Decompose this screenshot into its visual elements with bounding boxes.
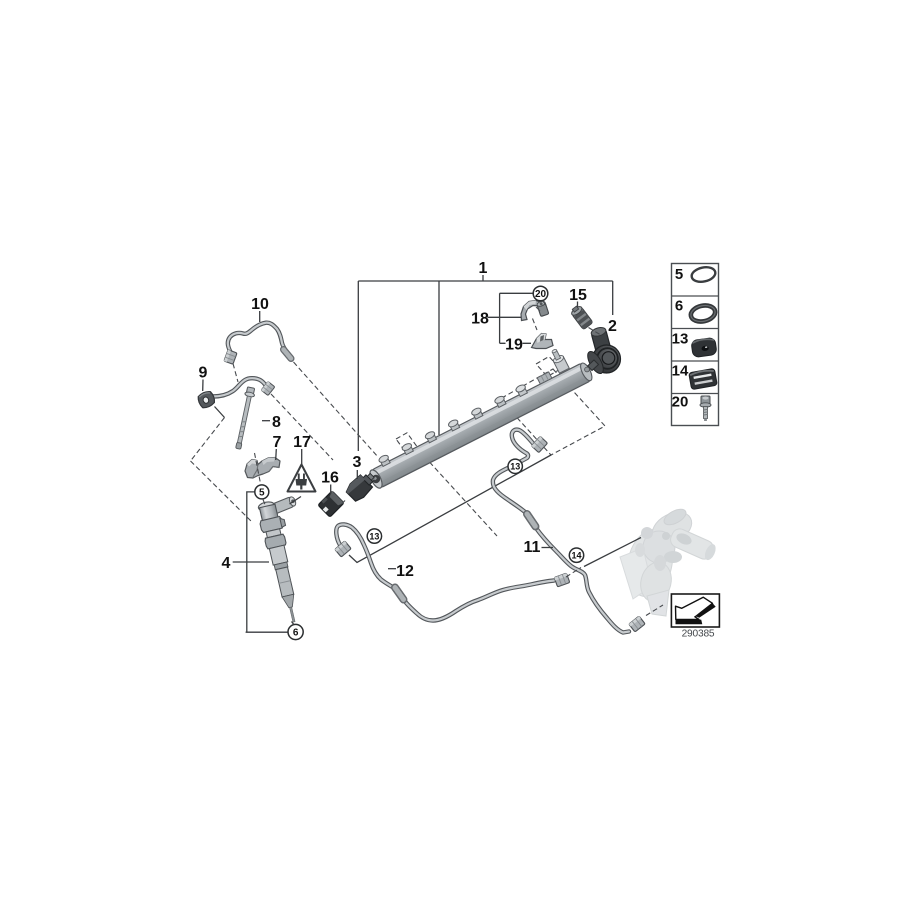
svg-text:2: 2	[608, 318, 617, 335]
svg-text:9: 9	[199, 365, 208, 382]
svg-text:13: 13	[510, 462, 520, 472]
svg-text:15: 15	[569, 287, 587, 304]
svg-text:18: 18	[471, 311, 489, 328]
svg-text:6: 6	[675, 298, 683, 315]
svg-text:7: 7	[273, 434, 282, 451]
svg-text:290385: 290385	[682, 629, 715, 640]
svg-text:1: 1	[479, 260, 488, 277]
svg-text:16: 16	[321, 470, 339, 487]
svg-text:12: 12	[396, 563, 414, 580]
svg-text:13: 13	[369, 531, 379, 541]
svg-text:13: 13	[672, 331, 689, 348]
svg-text:4: 4	[222, 555, 231, 572]
svg-text:8: 8	[272, 414, 281, 431]
svg-text:20: 20	[535, 289, 547, 300]
svg-text:3: 3	[353, 454, 362, 471]
svg-text:5: 5	[675, 266, 683, 283]
svg-text:19: 19	[505, 337, 523, 354]
svg-text:14: 14	[672, 363, 689, 380]
svg-text:14: 14	[571, 551, 581, 561]
svg-text:11: 11	[524, 539, 541, 556]
svg-text:17: 17	[293, 434, 311, 451]
svg-text:20: 20	[672, 394, 689, 411]
svg-text:10: 10	[251, 296, 269, 313]
svg-text:5: 5	[259, 487, 265, 498]
svg-text:6: 6	[293, 628, 299, 639]
